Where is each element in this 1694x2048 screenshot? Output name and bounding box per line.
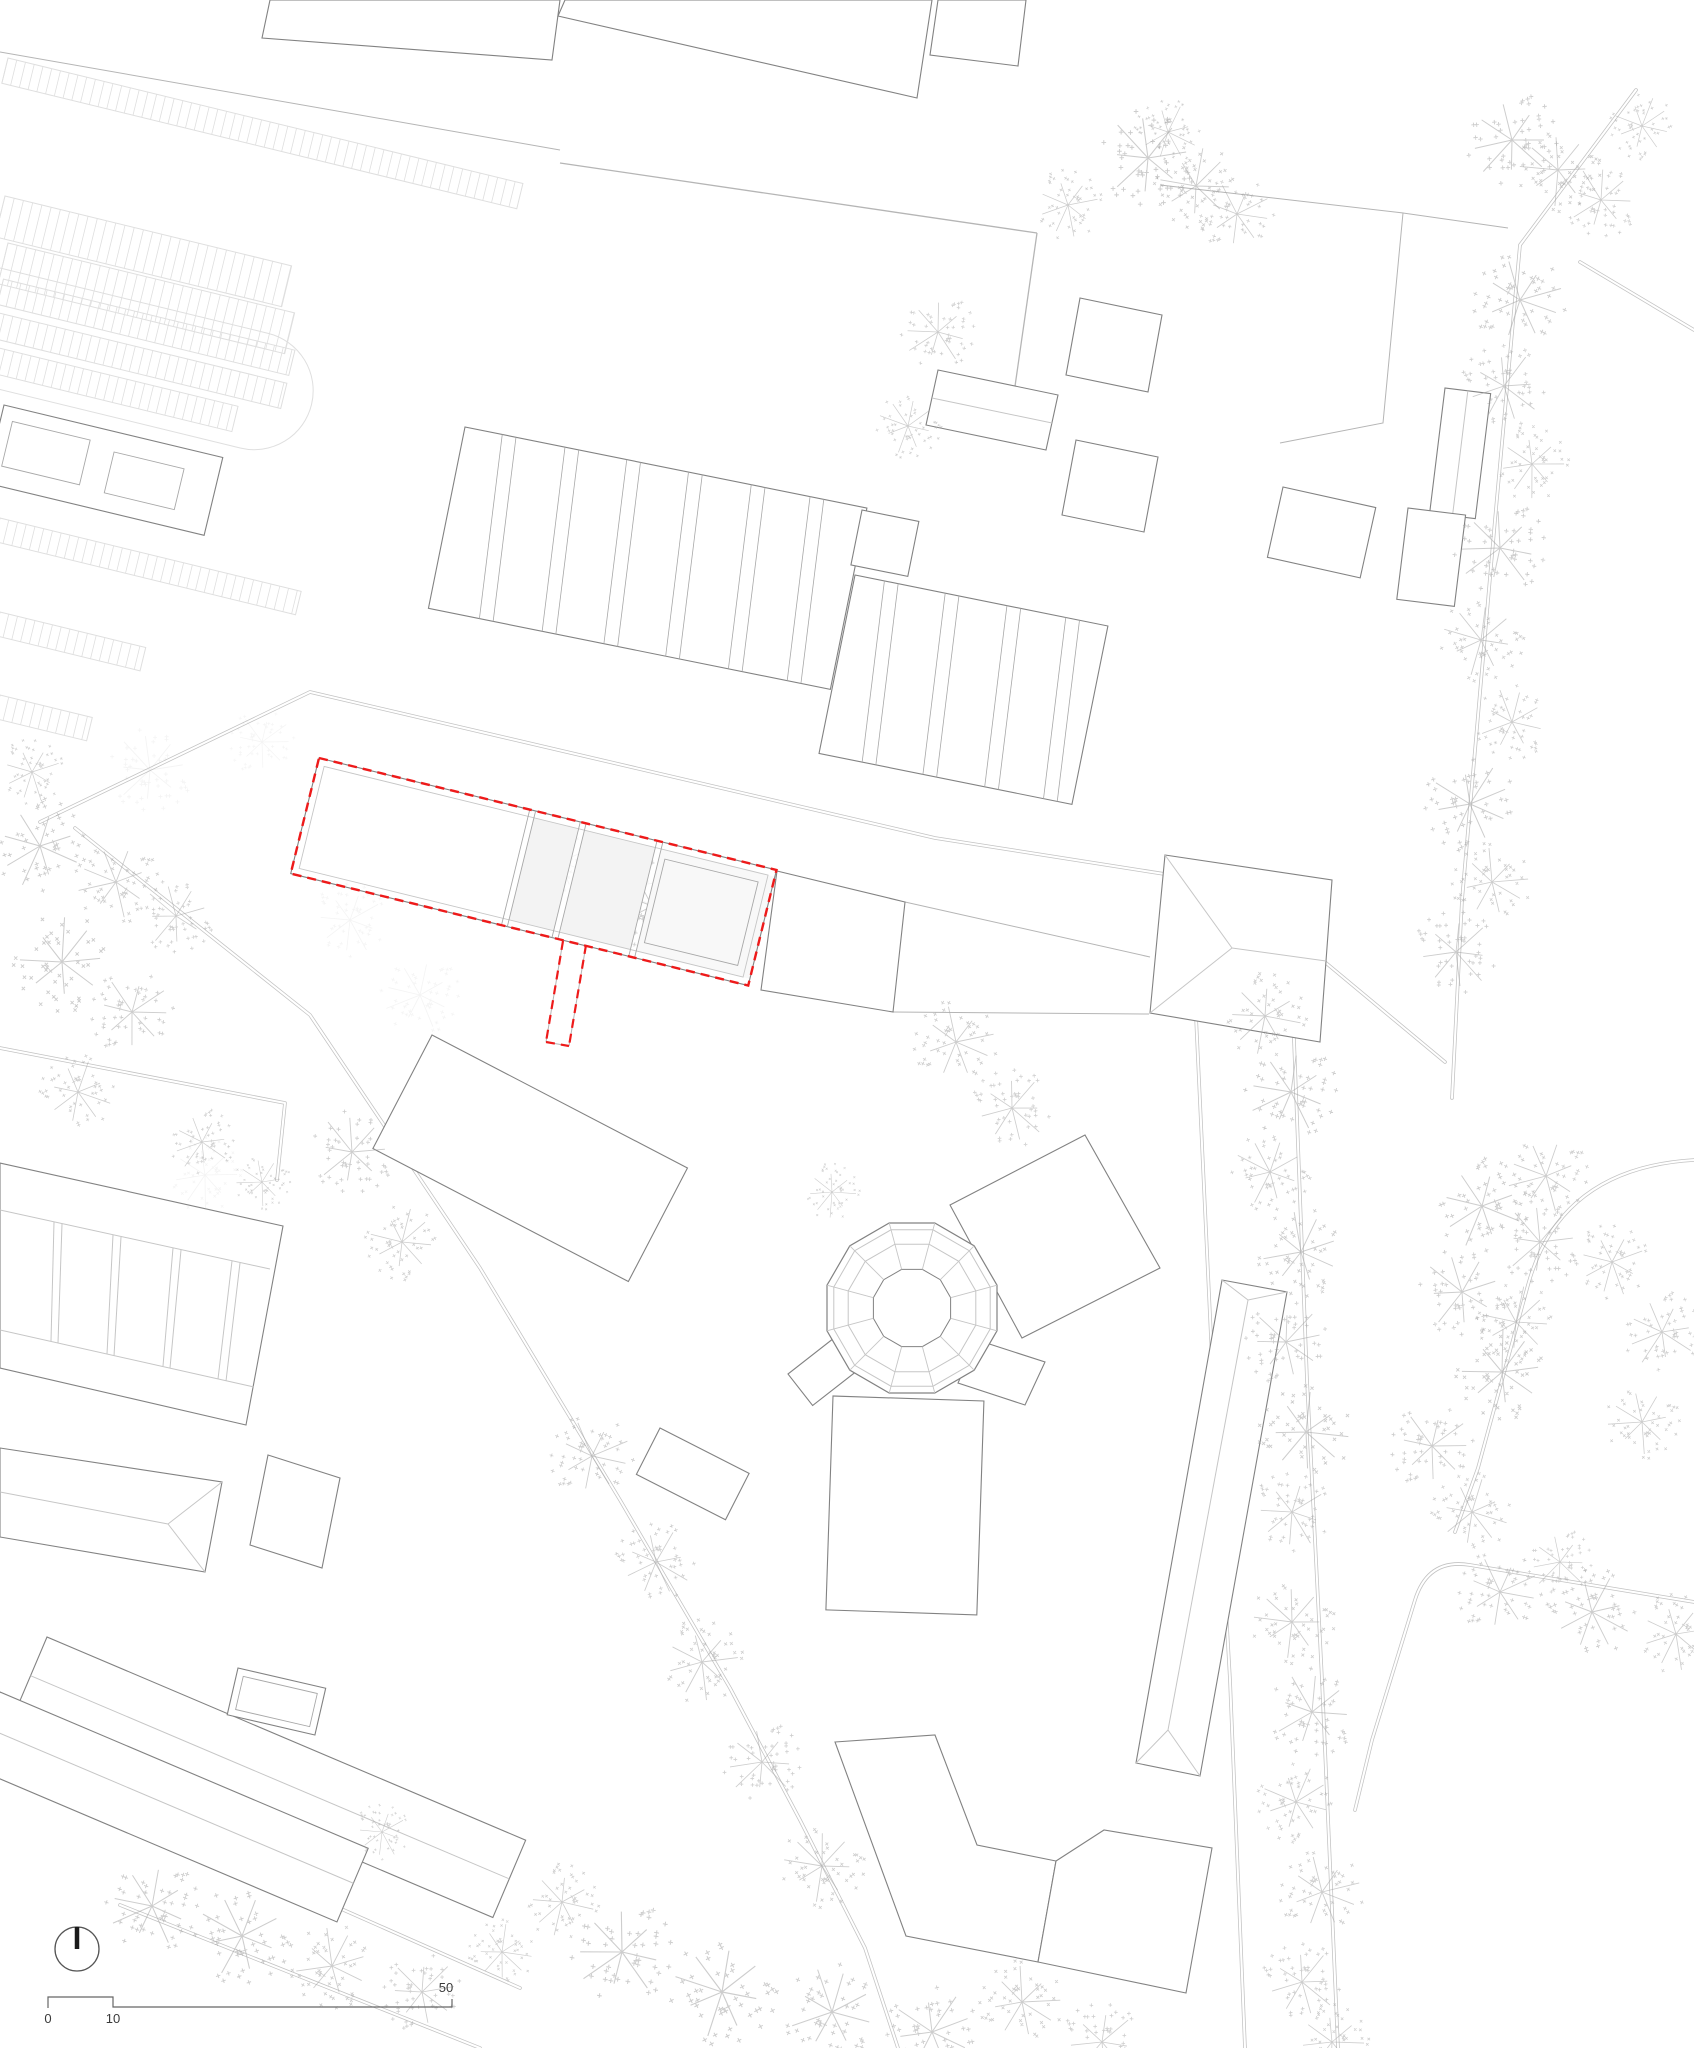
tree-faint	[307, 876, 393, 965]
tree	[0, 788, 100, 905]
building-block-x	[0, 1163, 283, 1425]
building-small-o	[636, 1428, 749, 1520]
building-court-x2	[0, 405, 223, 535]
tree-faint	[226, 707, 298, 776]
tree	[0, 895, 129, 1029]
tree	[1261, 1659, 1362, 1764]
tree	[1235, 1565, 1349, 1680]
tree	[1128, 91, 1209, 174]
tree	[1448, 1541, 1552, 1642]
tree	[652, 1921, 792, 2048]
tree	[1421, 1147, 1542, 1266]
building-hiproof-east	[1150, 855, 1332, 1042]
tree	[512, 1852, 613, 1952]
building-road-h	[1267, 487, 1375, 578]
building-south-s2	[1038, 1830, 1212, 1993]
tree	[971, 1065, 1054, 1151]
tree	[224, 1144, 301, 1220]
tree	[1591, 1371, 1693, 1472]
tree	[164, 1105, 240, 1179]
site-plan: 01050	[0, 0, 1694, 2048]
plot-line-topleft-boundary	[0, 52, 560, 150]
parking-strip-5	[0, 612, 146, 671]
building-rowhouse-b	[819, 575, 1108, 804]
tree	[1438, 828, 1546, 936]
tree	[1462, 92, 1562, 188]
tree	[646, 1605, 759, 1719]
building-rowhouse-a	[428, 427, 866, 689]
plot-line-topright-plot	[1160, 185, 1403, 443]
site-plan-svg: 01050	[0, 0, 1694, 2048]
building-narrow-f1	[1430, 388, 1491, 519]
building-hiproof-t	[0, 1448, 222, 1572]
plot-line-connector-lower	[893, 1012, 1149, 1014]
tree-faint	[370, 946, 470, 1044]
scale-bar	[48, 1997, 452, 2008]
building-narrow-f2	[1397, 508, 1466, 606]
path-southeast-street-lower	[1355, 1564, 1694, 1810]
building-longbar-q	[1136, 1280, 1287, 1776]
pavilion	[827, 1223, 997, 1393]
tree	[94, 1849, 210, 1962]
tree	[565, 1897, 679, 2007]
tree	[1192, 170, 1283, 258]
path-left-path-to-block	[0, 1048, 285, 1180]
tree	[1615, 1286, 1694, 1378]
tree	[794, 1154, 871, 1231]
building-top-center	[558, 0, 932, 98]
tree	[1623, 1581, 1694, 1688]
tree	[1414, 1242, 1510, 1342]
building-existing-r2	[761, 871, 905, 1012]
tree	[1063, 2001, 1142, 2048]
tree	[1565, 1214, 1659, 1310]
scale-label: 10	[106, 2011, 120, 2026]
path-right-road-upper	[1452, 90, 1636, 1098]
parking-strip-4	[0, 518, 301, 615]
parking-row-2b	[0, 243, 295, 354]
tree	[1420, 1459, 1524, 1565]
building-top-small	[930, 0, 1026, 66]
tree	[1221, 1122, 1318, 1222]
building-hall-k	[373, 1035, 688, 1282]
building-square-h2	[1062, 440, 1158, 532]
building-south-s1	[835, 1735, 1056, 1962]
tree	[722, 1724, 802, 1800]
tree	[85, 966, 180, 1057]
building-top-west	[262, 0, 560, 60]
tree	[458, 1907, 547, 1996]
tree	[60, 827, 172, 937]
tree	[1022, 158, 1115, 252]
parking-strip-6	[0, 695, 92, 741]
tree	[1414, 749, 1526, 858]
tree	[765, 1809, 879, 1924]
building-square-h1	[1066, 298, 1162, 392]
tree	[1599, 84, 1684, 168]
plot-line-topright-plot-link	[1403, 213, 1508, 228]
tree-faint	[110, 728, 189, 811]
tree	[770, 1948, 894, 2048]
layer-buildings	[0, 0, 1491, 1993]
proposed-building	[291, 758, 777, 986]
tree	[1386, 1401, 1478, 1490]
tree	[1247, 1466, 1337, 1559]
tree	[1267, 1837, 1378, 1947]
plot-line-topcenter-boundary	[560, 163, 1037, 233]
scale-label: 50	[439, 1980, 453, 1995]
layer-proposed	[291, 758, 777, 1046]
tree	[1281, 1991, 1383, 2048]
building-hall-n	[826, 1396, 984, 1615]
tree	[1234, 1037, 1348, 1148]
plot-line-connector-upper	[905, 902, 1150, 957]
scale-label: 0	[44, 2011, 51, 2026]
tree	[1139, 129, 1253, 243]
building-annex-c	[851, 510, 919, 576]
tree	[539, 1404, 645, 1507]
layer-parking	[0, 58, 523, 741]
tree	[0, 730, 74, 815]
tree	[1538, 1557, 1646, 1668]
building-small-v	[250, 1455, 340, 1568]
tree	[609, 1513, 704, 1610]
parking-strip-1	[2, 58, 523, 209]
tree	[900, 986, 1012, 1097]
layer-pavilion	[827, 1223, 997, 1393]
tree	[895, 291, 980, 373]
tree	[1245, 1752, 1347, 1852]
